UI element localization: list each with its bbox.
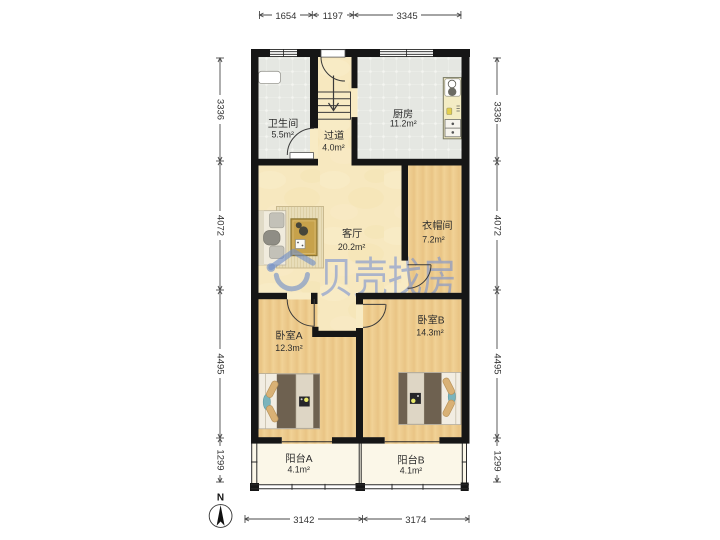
svg-text:卫生间: 卫生间	[268, 117, 299, 130]
svg-text:过道: 过道	[324, 129, 344, 142]
svg-text:4.1m²: 4.1m²	[287, 465, 310, 475]
svg-text:4495: 4495	[492, 353, 503, 374]
svg-text:客厅: 客厅	[342, 227, 362, 240]
svg-text:衣帽间: 衣帽间	[422, 219, 453, 232]
svg-text:卧室A: 卧室A	[275, 329, 302, 342]
svg-text:20.2m²: 20.2m²	[338, 242, 365, 252]
svg-text:1654: 1654	[275, 11, 296, 22]
svg-text:11.2m²: 11.2m²	[390, 119, 417, 129]
svg-text:1299: 1299	[215, 449, 226, 470]
svg-text:7.2m²: 7.2m²	[422, 234, 445, 244]
svg-text:阳台B: 阳台B	[397, 454, 424, 467]
svg-text:3142: 3142	[293, 515, 314, 526]
svg-text:阳台A: 阳台A	[285, 452, 312, 465]
svg-text:3336: 3336	[492, 101, 503, 122]
svg-text:3174: 3174	[405, 515, 426, 526]
svg-text:4495: 4495	[215, 353, 226, 374]
svg-text:14.3m²: 14.3m²	[416, 327, 443, 337]
svg-text:3345: 3345	[397, 11, 418, 22]
svg-text:4072: 4072	[215, 215, 226, 236]
svg-text:12.3m²: 12.3m²	[275, 343, 302, 353]
svg-text:1299: 1299	[492, 450, 503, 471]
svg-text:4.0m²: 4.0m²	[322, 143, 345, 153]
svg-text:4.1m²: 4.1m²	[400, 466, 423, 476]
svg-text:1197: 1197	[323, 11, 343, 22]
svg-text:5.5m²: 5.5m²	[271, 129, 294, 139]
svg-text:3336: 3336	[215, 99, 226, 120]
svg-text:N: N	[217, 493, 224, 504]
svg-text:卧室B: 卧室B	[417, 314, 444, 327]
svg-text:4072: 4072	[492, 215, 503, 236]
